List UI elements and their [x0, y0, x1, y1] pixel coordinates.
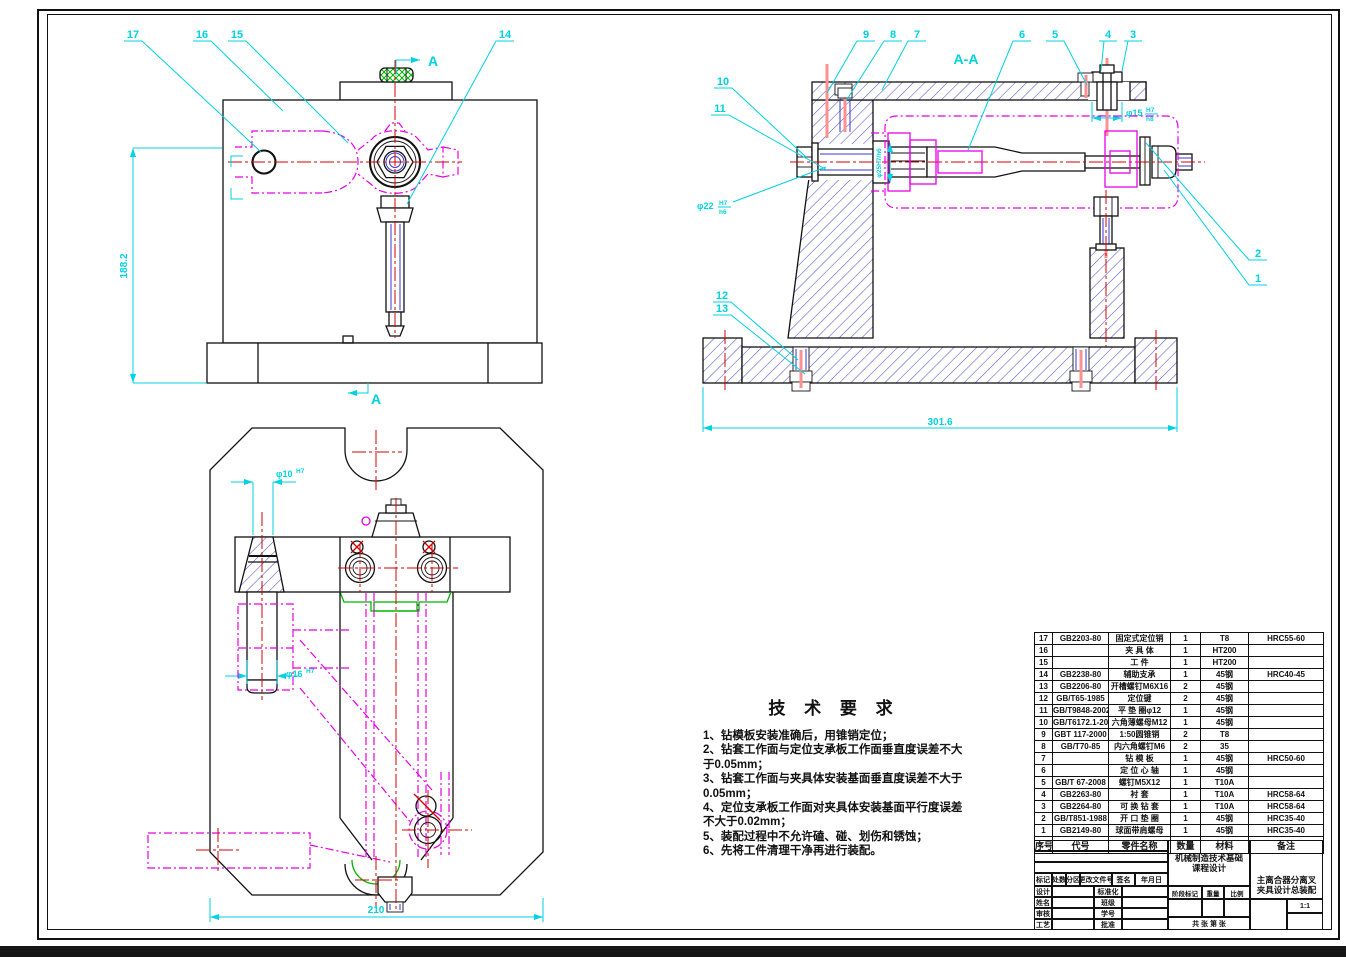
label-stage-mark: 阶段标记	[1168, 886, 1202, 899]
revision-row	[1034, 840, 1168, 851]
section-arrow-bottom: A	[348, 383, 381, 407]
svg-text:12: 12	[716, 290, 728, 302]
bom-row: 17GB2203-80固定式定位销1T8HRC55-60	[1035, 633, 1324, 645]
field-name	[1052, 897, 1094, 908]
tech-req-title: 技 术 要 求	[703, 694, 965, 719]
svg-text:H7: H7	[1146, 107, 1155, 114]
section-view: A-A	[697, 29, 1267, 432]
tech-req-item: 4、定位支承板工作面对夹具体安装基面平行度误差不大于0.02mm；	[703, 801, 965, 830]
course-name: 机械制造技术基础 课程设计	[1168, 840, 1250, 886]
balloon-3: 3	[1122, 29, 1142, 71]
bom-row: 15工 件1HT200	[1035, 657, 1324, 669]
bom-row: 10GB/T6172.1-2000六角薄螺母M12145钢	[1035, 717, 1324, 729]
label-change-doc: 更改文件号	[1080, 873, 1112, 886]
title-block: 标记 处数 分区 更改文件号 签名 年月日 设计 标准化 姓名 班级 审核 学号…	[1034, 840, 1323, 930]
label-date: 年月日	[1135, 873, 1168, 886]
svg-text:7: 7	[914, 29, 920, 41]
svg-text:1: 1	[1255, 273, 1261, 285]
field-process	[1052, 919, 1094, 930]
label-design: 设计	[1034, 886, 1052, 897]
column-left	[788, 100, 873, 338]
tech-req-item: 6、先将工件清理干净再进行装配。	[703, 844, 965, 858]
bom-row: 13GB2206-80开槽螺钉M6X16245钢	[1035, 681, 1324, 693]
svg-text:h6: h6	[719, 209, 727, 216]
dim-base-length: 301.6	[703, 387, 1177, 432]
drawing-title: 主离合器分离叉 夹具设计总装配	[1250, 840, 1323, 899]
front-boss	[340, 82, 452, 100]
bottom-bar	[0, 946, 1346, 957]
field-design	[1052, 886, 1094, 897]
base-front	[207, 343, 542, 383]
label-class: 班级	[1094, 897, 1122, 908]
svg-text:9: 9	[863, 29, 869, 41]
tech-req-list: 1、钻模板安装准确后，用锥销定位；2、钻套工作面与定位支承板工作面垂直度误差不大…	[703, 729, 965, 859]
label-scale: 比例	[1224, 886, 1250, 899]
bom-row: 14GB2238-80辅助支承145钢HRC40-45	[1035, 669, 1324, 681]
field-blank-br	[1250, 899, 1287, 930]
svg-text:5: 5	[1052, 29, 1058, 41]
scale-value: 1:1	[1287, 899, 1323, 913]
tech-req-item: 1、钻模板安装准确后，用锥销定位；	[703, 729, 965, 743]
svg-text:φ22: φ22	[697, 201, 713, 211]
label-approve: 批准	[1094, 919, 1122, 930]
fixture-body-front	[223, 100, 537, 343]
svg-text:H7: H7	[719, 200, 728, 207]
field-approve	[1122, 919, 1168, 930]
technical-requirements: 技 术 要 求 1、钻模板安装准确后，用锥销定位；2、钻套工作面与定位支承板工作…	[703, 694, 965, 859]
svg-text:4: 4	[1105, 29, 1112, 41]
sheet-info: 共 张 第 张	[1168, 917, 1250, 930]
revision-row	[1034, 851, 1168, 862]
bom-row: 12GB/T65-1985定位键245钢	[1035, 693, 1324, 705]
svg-text:φ10: φ10	[276, 469, 292, 479]
bom-row: 2GB/T851-1988开 口 垫 圈145钢HRC35-40	[1035, 813, 1324, 825]
bom-table: 17GB2203-80固定式定位销1T8HRC55-6016夹 具 体1HT20…	[1034, 632, 1324, 854]
svg-text:φ25H7/h6: φ25H7/h6	[876, 148, 883, 178]
field-blank-br2	[1287, 913, 1323, 930]
bom-row: 8GB/T70-85内六角螺钉M6235	[1035, 741, 1324, 753]
svg-text:210: 210	[368, 905, 385, 916]
label-name: 姓名	[1034, 897, 1052, 908]
bom-row: 7钻 模 板145钢HRC50-60	[1035, 753, 1324, 765]
label-zone: 分区	[1066, 873, 1080, 886]
field-check	[1052, 908, 1094, 919]
field-stage-mark	[1168, 899, 1202, 917]
balloon-1: 1	[1164, 170, 1267, 285]
svg-text:14: 14	[499, 29, 512, 41]
bom-row: 4GB2263-80衬 套1T10AHRC58-64	[1035, 789, 1324, 801]
label-signature: 签名	[1112, 873, 1135, 886]
bom-row: 6定 位 心 轴145钢	[1035, 765, 1324, 777]
bom-row: 16夹 具 体1HT200	[1035, 645, 1324, 657]
svg-text:10: 10	[717, 76, 729, 88]
drill-bushing-assembly	[1078, 58, 1146, 136]
svg-text:φ16: φ16	[286, 669, 302, 679]
field-scale-mid	[1224, 899, 1250, 917]
bom-row: 5GB/T 67-2008螺钉M5X121T10A	[1035, 777, 1324, 789]
label-mark: 标记	[1034, 873, 1052, 886]
field-weight	[1202, 899, 1224, 917]
balloon-7: 7	[882, 29, 926, 90]
bom-row: 11GB/T9848-2002平 垫 圈φ12145钢	[1035, 705, 1324, 717]
svg-text:6: 6	[1019, 29, 1025, 41]
field-student-id	[1122, 908, 1168, 919]
label-student-id: 学号	[1094, 908, 1122, 919]
svg-text:15: 15	[231, 29, 243, 41]
tech-req-item: 3、钻套工作面与夹具体安装基面垂直度误差不大于0.05mm；	[703, 772, 965, 801]
svg-text:13: 13	[716, 303, 728, 315]
bom-body: 17GB2203-80固定式定位销1T8HRC55-6016夹 具 体1HT20…	[1035, 633, 1324, 854]
revision-row	[1034, 862, 1168, 873]
front-view: 188.2 A A 17 16 15 14	[119, 29, 542, 407]
label-check: 审核	[1034, 908, 1052, 919]
label-count: 处数	[1052, 873, 1066, 886]
svg-text:h8: h8	[1146, 116, 1154, 123]
svg-text:11: 11	[714, 103, 726, 115]
plan-view: φ10 H7 φ16 H7	[148, 428, 543, 922]
svg-text:3: 3	[1130, 29, 1136, 41]
svg-text:301.6: 301.6	[927, 417, 952, 428]
tech-req-item: 5、装配过程中不允许磕、碰、划伤和锈蚀；	[703, 830, 965, 844]
aux-support-section	[1090, 190, 1124, 350]
dim-plan-width: 210	[210, 898, 543, 922]
svg-text:2: 2	[1255, 248, 1261, 260]
svg-text:A: A	[371, 391, 381, 407]
label-weight: 重量	[1202, 886, 1224, 899]
svg-text:H7: H7	[296, 468, 305, 475]
tech-req-item: 2、钻套工作面与定位支承板工作面垂直度误差不大于0.05mm；	[703, 743, 965, 772]
label-process: 工艺	[1034, 919, 1052, 930]
balloon-11: 11	[711, 103, 827, 170]
bom-row: 3GB2264-80可 换 钻 套1T10AHRC58-64	[1035, 801, 1324, 813]
label-standardization: 标准化	[1094, 886, 1122, 897]
bom-row: 9GBT 117-20001:50圆锥销2T8	[1035, 729, 1324, 741]
svg-text:188.2: 188.2	[119, 253, 130, 278]
bom-row: 1GB2149-80球面带肩螺母145钢HRC35-40	[1035, 825, 1324, 837]
svg-text:16: 16	[196, 29, 208, 41]
field-class	[1122, 897, 1168, 908]
balloon-10: 10	[714, 76, 806, 157]
svg-text:A: A	[428, 53, 438, 69]
drawing-sheet: 188.2 A A 17 16 15 14 A-A	[0, 0, 1346, 957]
field-standardization	[1122, 886, 1168, 897]
svg-text:H7: H7	[306, 668, 315, 675]
svg-text:17: 17	[127, 29, 139, 41]
svg-text:8: 8	[890, 29, 896, 41]
section-view-label: A-A	[954, 51, 979, 67]
